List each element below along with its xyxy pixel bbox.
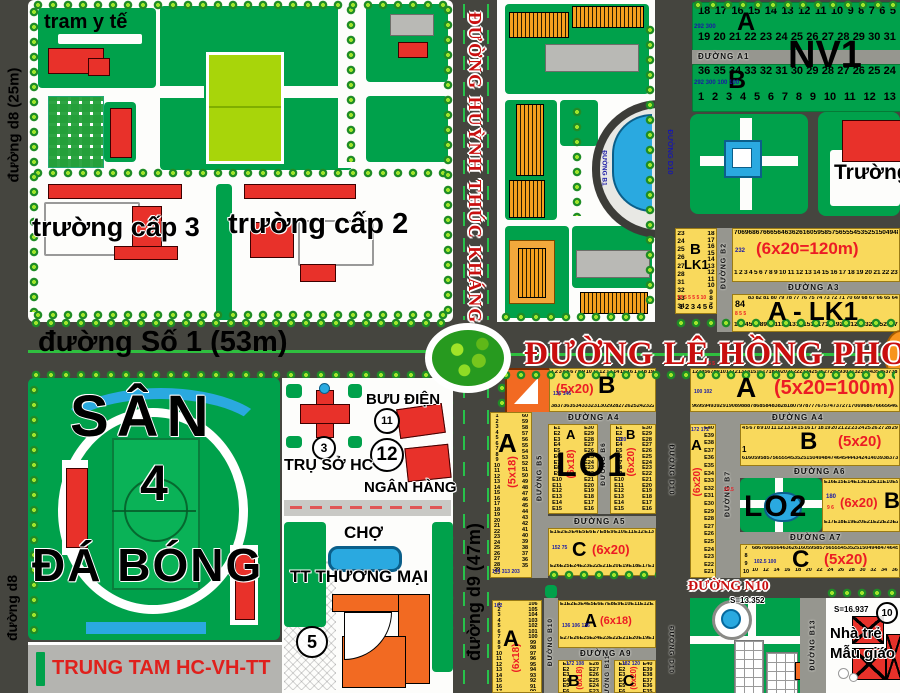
lot-number: 23	[851, 426, 857, 433]
community-building-2	[766, 652, 798, 693]
lot-number: 8	[757, 426, 760, 433]
lot-number: E15	[552, 507, 562, 513]
lot-number: E21	[704, 570, 714, 576]
lot-number: 26	[838, 568, 844, 575]
lot-dims-red: (6x18)	[600, 616, 632, 627]
tree-column	[645, 24, 655, 304]
label-lo1-c: C	[572, 540, 586, 560]
lot-number: 26	[871, 426, 877, 433]
lot-number: E9	[607, 530, 614, 537]
label-kinder-2: Mẫu giáo	[830, 646, 895, 661]
label-b-lk1-2: LK1	[684, 258, 709, 271]
lot-numbers: E40E39E38E37E36E35E34E33	[641, 662, 654, 692]
apartment-building	[580, 292, 648, 314]
lot-number: 66	[877, 296, 883, 303]
lot-number: 8	[769, 270, 773, 278]
lot-dims-red: (6x20)	[592, 543, 630, 556]
lot-dims-blue: 136 106 136	[562, 624, 590, 629]
lot-dims-red: (6x20)	[627, 448, 637, 477]
lot-number: E31	[704, 494, 714, 500]
lot-number: E16	[642, 507, 652, 513]
label-b: B	[598, 374, 615, 398]
lot-numbers: 6160595857565554535251504948474645444342…	[742, 456, 898, 463]
lot-number: E39	[704, 434, 714, 440]
plaza-corner	[286, 436, 302, 448]
apartment-building	[509, 12, 569, 38]
lot-number: 22	[649, 404, 654, 411]
lot-dims-red2: 9 6	[827, 506, 834, 511]
lot-number: 36	[892, 568, 898, 575]
lot-number: 10	[752, 568, 758, 575]
lot-numbers: 78910	[742, 546, 750, 576]
lane-dash	[487, 384, 489, 684]
stadium-pool-bar	[86, 622, 206, 634]
lot-number: 5	[703, 303, 707, 312]
lot-number: 5	[746, 426, 749, 433]
lot-numbers: 38373635343332313029282726252423222120	[551, 404, 654, 411]
lot-number: 15	[822, 270, 829, 278]
ne-red-building	[398, 42, 428, 58]
lot-number: E35	[643, 690, 653, 693]
lot-number: 24	[677, 239, 684, 246]
lot-number: 5	[754, 92, 760, 105]
tree-column	[29, 6, 39, 312]
label-lo1-b: B	[626, 428, 635, 441]
lot-numbers: E40E39E38E37E36E35E34E33E32E31E30E29E28E…	[703, 426, 715, 576]
plaza-corner	[348, 436, 362, 448]
lot-number: 4	[749, 270, 753, 278]
lot-number: E34	[704, 472, 714, 478]
street-label-huynh-thuc-khang: ĐƯỜNG HUỲNH THÚC KHÁNG	[466, 12, 484, 325]
lot-number: E19	[638, 636, 648, 643]
lot-number: 68	[861, 296, 867, 303]
lot-number: 22	[882, 270, 889, 278]
lot-number: 11	[844, 92, 856, 105]
lot-number: E26	[570, 636, 580, 643]
lot-number: 19	[698, 32, 710, 45]
lot-number: 19	[824, 426, 830, 433]
label-tru-so-hc: TRỤ SỞ HC	[284, 458, 373, 474]
school2-building-red2	[300, 264, 336, 282]
lot-number: E26	[704, 532, 714, 538]
street-label-a6: ĐƯỜNG A6	[794, 468, 845, 476]
street-label-b5: ĐƯỜNG B5	[537, 455, 544, 501]
lot-number: 13	[784, 426, 790, 433]
lot-number: E9	[892, 480, 898, 487]
lot-number: 13	[884, 92, 896, 105]
lot-number: 11	[788, 270, 795, 278]
label-da-bong: ĐÁ BÓNG	[32, 542, 263, 588]
lot-number: 17	[839, 270, 846, 278]
label-ngan-hang: NGÂN HÀNG	[364, 480, 457, 495]
street-label-a9: ĐƯỜNG A9	[580, 650, 631, 658]
lot-number: 8	[796, 92, 802, 105]
lot-number: 31	[677, 280, 684, 287]
lot-number: 9	[810, 92, 816, 105]
small-green-lot-2	[545, 585, 557, 598]
lot-number: 28	[677, 272, 684, 279]
lot-number: E24	[704, 548, 714, 554]
lot-dims-blue: 292 300 100 100	[694, 80, 739, 86]
lot-number: 21	[838, 426, 844, 433]
market-lawn-right	[432, 522, 453, 672]
lot-number: 14	[791, 426, 797, 433]
lot-number: E21	[863, 520, 873, 527]
lot-number: 28	[885, 426, 891, 433]
apartment-building	[572, 6, 644, 28]
lot-number: E35	[704, 464, 714, 470]
label-c620: C	[623, 674, 635, 690]
lot-number: E25	[704, 540, 714, 546]
lot-number: 9	[774, 270, 778, 278]
lot-number: E11	[630, 602, 639, 609]
lot-number: E15	[614, 507, 624, 513]
lot-numbers: 1061051041031021011009998979695949392919…	[527, 602, 539, 691]
lot-number: E23	[599, 636, 609, 643]
lot-number: E12	[640, 602, 650, 609]
lot-dims-blue: 292 300	[694, 24, 716, 30]
lot-number: E36	[704, 456, 714, 462]
lot-number: 12	[863, 92, 875, 105]
lot-number: 48	[893, 230, 898, 238]
lot-number: 7	[764, 270, 768, 278]
label-san: SÂN	[70, 388, 216, 446]
lot-number: 10	[779, 270, 786, 278]
lot-number: 25	[868, 66, 880, 79]
lot-number: E8	[607, 602, 614, 609]
lot-number: 19	[856, 270, 863, 278]
lot-numbers: 6059585756555453525150494847464544434241…	[520, 414, 530, 570]
lot-number: 56	[835, 230, 842, 238]
tree-row	[32, 168, 447, 178]
lot-number: 30	[868, 32, 880, 45]
lot-number: 32	[870, 568, 876, 575]
street-label-a1: ĐƯỜNG A1	[698, 53, 749, 61]
street-label-a4-right: ĐƯỜNG A4	[772, 414, 823, 422]
lot-number: E5	[578, 530, 585, 537]
lot-number: 60	[806, 230, 813, 238]
lot-number: E32	[704, 487, 714, 493]
lot-number: E8	[600, 530, 607, 537]
label-a-lk1: A - LK1	[768, 298, 858, 324]
lot-number: 4	[742, 426, 745, 433]
lot-number: 25	[865, 426, 871, 433]
lot-number: 9	[744, 562, 747, 568]
badge-11-num: 11	[381, 415, 393, 427]
lot-number: E33	[704, 479, 714, 485]
school-building	[842, 120, 900, 162]
label-lo1-a: A	[566, 428, 575, 441]
garden-plots	[48, 96, 104, 168]
lot-number: 32	[677, 288, 684, 295]
lot-number: 10	[824, 92, 836, 105]
lot-number: E10	[882, 480, 892, 487]
tree-row	[826, 588, 900, 598]
street-label-d10-mid: ĐƯỜNG D10	[668, 444, 675, 495]
lot-numbers: E1E2E3E4E5E6E7E8E9E10E11E12E13	[550, 530, 654, 537]
lot-number: 20	[865, 270, 872, 278]
lot-dims-red: (5x20=100m)	[774, 378, 895, 398]
apartment-building	[518, 248, 546, 298]
lot-number: 16	[784, 568, 790, 575]
street-label-b7: ĐƯỜNG B7	[725, 471, 732, 517]
lot-number: 17	[496, 690, 502, 691]
badge-5: 5	[296, 626, 328, 658]
badge-5-num: 5	[307, 632, 317, 653]
label-truong: Trường	[834, 162, 900, 183]
school-bar-2	[244, 184, 356, 199]
lot-number: 1	[698, 92, 704, 105]
lot-number: 12	[763, 568, 769, 575]
lot-dims-red: (6x20=120m)	[756, 240, 859, 257]
kinder-circle	[849, 673, 858, 682]
label-a: A	[498, 430, 517, 456]
lot-number: 6	[709, 303, 713, 312]
lot-corner-84: 84	[735, 300, 745, 309]
lot-numbers: E28E27E26E25E24E23E22E21	[588, 662, 600, 692]
lot-number: E11	[624, 530, 633, 537]
lot-number: E6	[586, 530, 593, 537]
lot-number: 20	[713, 32, 725, 45]
lot-number: 22	[817, 568, 823, 575]
lot-number: E7	[600, 602, 607, 609]
lot-number: 35	[713, 66, 725, 79]
street-label-b1: ĐƯỜNG B1	[600, 150, 607, 186]
lot-dims-red: 8 5 5	[735, 312, 746, 317]
lot-number: 23	[760, 32, 772, 45]
lot-number: 18	[818, 426, 824, 433]
lot-number: E22	[873, 520, 883, 527]
lot-number: 8	[744, 554, 747, 560]
lot-numbers: 1012141618202224262830323436	[752, 568, 898, 575]
lot-dims-blue: 162	[494, 604, 502, 609]
lot-number: 65	[770, 230, 777, 238]
lot-number: 4	[697, 303, 701, 312]
lot-number: E16	[584, 507, 594, 513]
street-label-so1: đường Số 1 (53m)	[38, 328, 287, 357]
lot-number: 24	[858, 426, 864, 433]
lot-number: E21	[619, 636, 629, 643]
lot-number: E7	[593, 530, 600, 537]
lot-number: E22	[609, 636, 619, 643]
lot-number: 5	[754, 270, 758, 278]
lot-number: 14	[813, 270, 820, 278]
apt-gray-slab-2	[576, 250, 650, 278]
lot-number: E29	[704, 510, 714, 516]
lot-dims-red: (5x20)	[838, 434, 881, 449]
legend-green-bar	[36, 652, 45, 686]
lot-number: 32	[760, 66, 772, 79]
lot-number: E13	[644, 530, 654, 537]
school3-building-red2	[114, 246, 178, 260]
lot-number: E11	[873, 480, 882, 487]
tree-column	[346, 4, 356, 162]
medical-path	[58, 34, 142, 44]
lot-number: 66	[763, 230, 770, 238]
lot-number: E10	[614, 530, 624, 537]
lot-number: E1	[560, 602, 567, 609]
lot-number: 16	[830, 270, 837, 278]
lot-number: E13	[853, 480, 863, 487]
street-label-b2: ĐƯỜNG B2	[721, 243, 728, 289]
lot-dims-red: 20.5	[724, 488, 734, 493]
lot-number: 31	[884, 32, 896, 45]
lot-number: E24	[589, 636, 599, 643]
label-rc: C	[792, 548, 809, 572]
lot-number: 6	[768, 92, 774, 105]
sports-field	[206, 52, 284, 164]
lot-number: 1	[679, 303, 683, 312]
lot-number: 9	[760, 426, 763, 433]
label-lo2-b: B	[884, 490, 900, 512]
lot-numbers: E30E29E28E27E26E25E24E23E22E21E20E19E18E…	[640, 426, 654, 512]
lot-number: 6	[759, 270, 763, 278]
label-trung-tam: TRUNG TAM HC-VH-TT	[52, 658, 270, 678]
lot-number: 10	[743, 570, 749, 576]
lot-numbers: 123456	[679, 303, 713, 312]
tree-column	[572, 106, 582, 216]
lot-dims-blue: 144 313 203	[492, 570, 520, 575]
lot-number: E14	[844, 480, 854, 487]
lot-numbers: 9695949392919089888786858483828180797877…	[692, 404, 898, 411]
lot-number: 22	[845, 426, 851, 433]
lot-number: 10	[764, 426, 770, 433]
lot-number: 50	[879, 230, 886, 238]
label-school-3: trường cấp 3	[32, 214, 200, 241]
label-block-a: A	[737, 10, 755, 35]
lot-number: 61	[799, 230, 806, 238]
lot-number: E27	[560, 636, 570, 643]
label-thuong-mai: TT THƯƠNG MẠI	[290, 568, 428, 585]
lot-numbers: E1E2E3E4E5E6E7E8E9E10E11E12E13	[560, 602, 654, 609]
lot-number: E23	[704, 555, 714, 561]
lot-number: 35	[522, 564, 528, 570]
hq-building-horizontal	[300, 404, 350, 424]
lot-number: 2	[685, 303, 689, 312]
lot-number: E1	[550, 530, 557, 537]
apt-gray-slab	[545, 44, 639, 72]
lot-number: E38	[704, 441, 714, 447]
bank-building	[404, 444, 451, 482]
tree-column	[443, 4, 453, 316]
street-label-b11: ĐƯỜNG B11	[605, 655, 611, 693]
tree-row	[32, 0, 450, 10]
lot-numbers: E27E26E25E24E23E22E21E20E19E18E17E16E15	[560, 636, 654, 643]
lot-number: E23	[883, 520, 893, 527]
label-nv1: NV1	[788, 36, 862, 74]
lot-number: E18	[834, 520, 844, 527]
lot-number: E13	[650, 602, 654, 609]
lot-number: 34	[881, 568, 887, 575]
lot-number: 33	[744, 66, 756, 79]
street-label-a3: ĐƯỜNG A3	[788, 284, 839, 292]
tree-row	[500, 312, 650, 322]
park-path-1	[160, 86, 204, 98]
school-divider-lawn	[216, 184, 232, 320]
roundabout	[425, 323, 511, 393]
lot-dims-blue: 232	[735, 248, 745, 254]
lot-number: 24	[884, 66, 896, 79]
lot-number: 13	[804, 270, 811, 278]
street-label-d8-bottom: đường d8	[5, 575, 19, 641]
lot-dims-red: (6x20)	[840, 496, 878, 509]
lot-dims-blue: 182 120	[622, 662, 640, 667]
lot-number: 28	[849, 568, 855, 575]
tree-row	[548, 570, 656, 580]
fountain-inner	[721, 609, 741, 629]
label-b-lk1: B	[690, 242, 701, 257]
label-s-park: S=13.352	[730, 597, 764, 605]
lot-dims-blue: 152 75	[552, 546, 567, 551]
lot-number: 24	[827, 568, 833, 575]
lot-number: 7	[744, 546, 747, 552]
post-office-building	[396, 403, 446, 439]
badge-10-num: 10	[881, 608, 892, 619]
corner-lot-triangle	[514, 378, 538, 404]
street-label-b10: ĐƯỜNG B10	[548, 618, 555, 666]
lot-number: E22	[704, 563, 714, 569]
monument-inner	[732, 148, 752, 168]
community-building-1	[734, 640, 764, 693]
lot-number: 67	[869, 296, 875, 303]
label-rcola: A	[691, 438, 702, 453]
parking-ticks	[290, 506, 445, 509]
lot-number: 2	[739, 270, 743, 278]
lot-number: 24	[775, 32, 787, 45]
lot-number: 49	[886, 230, 893, 238]
lot-number: 64	[892, 296, 898, 303]
lot-number: E23	[589, 690, 599, 693]
lot-number: E24	[893, 520, 898, 527]
lot-number: E4	[580, 602, 587, 609]
label-cho: CHỢ	[344, 524, 383, 541]
lot-number: 67	[756, 230, 763, 238]
lot-number: 20	[831, 426, 837, 433]
lot-number: E4	[571, 530, 578, 537]
lot-number: 62	[792, 230, 799, 238]
lot-dims-red: (5x18)	[508, 456, 519, 488]
lot-number: E10	[621, 602, 631, 609]
lot-number: 52	[864, 230, 871, 238]
lot-dims-red: (5x20)	[824, 552, 867, 567]
lot-number: 25	[677, 247, 684, 254]
lot-number: 53	[857, 230, 864, 238]
label-lo2: LO2	[744, 492, 808, 522]
lot-numbers: E16E15E14E13E12E11E10E9E8	[824, 480, 898, 487]
tree-column	[29, 384, 39, 634]
lot-number: 29	[892, 426, 898, 433]
lot-number: 7	[782, 92, 788, 105]
lot-number: 3	[744, 270, 748, 278]
lot-number: 12	[796, 270, 803, 278]
lot-dims-blue: 120	[618, 438, 626, 443]
apartment-building	[509, 180, 545, 218]
lot-number: E15	[834, 480, 844, 487]
lot-number: 83	[748, 296, 754, 303]
street-label-d10-bot: ĐƯỜNG D10	[667, 626, 674, 674]
kinder-circle	[838, 668, 849, 679]
lot-number: 21	[873, 270, 880, 278]
lot-number: 12	[777, 426, 783, 433]
label-san-4: 4	[140, 458, 168, 508]
label-kinder-1: Nhà trẻ	[830, 626, 882, 641]
lot-number: 11	[771, 426, 777, 433]
label-rb: B	[800, 430, 817, 454]
street-label-a5: ĐƯỜNG A5	[574, 518, 625, 526]
lot-one: 1	[742, 446, 746, 454]
lot-number: E28	[704, 517, 714, 523]
lot-number: E9	[614, 602, 621, 609]
